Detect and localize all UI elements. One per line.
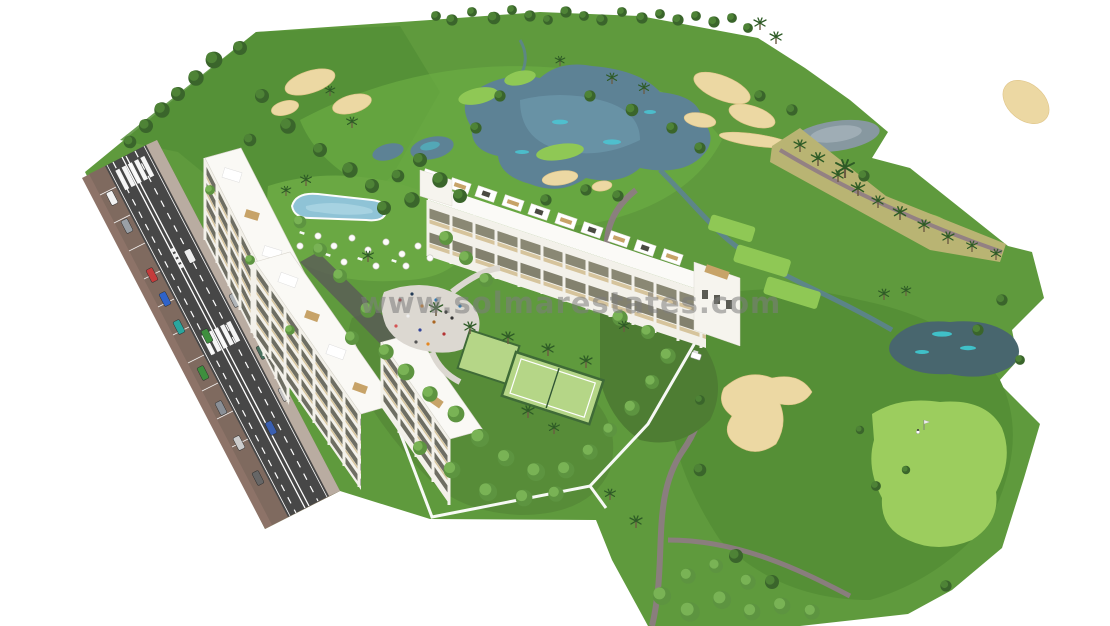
putting-green [871,401,1006,548]
render-canvas [0,0,1110,626]
render-root: www.solmarestates.com [0,0,1110,626]
